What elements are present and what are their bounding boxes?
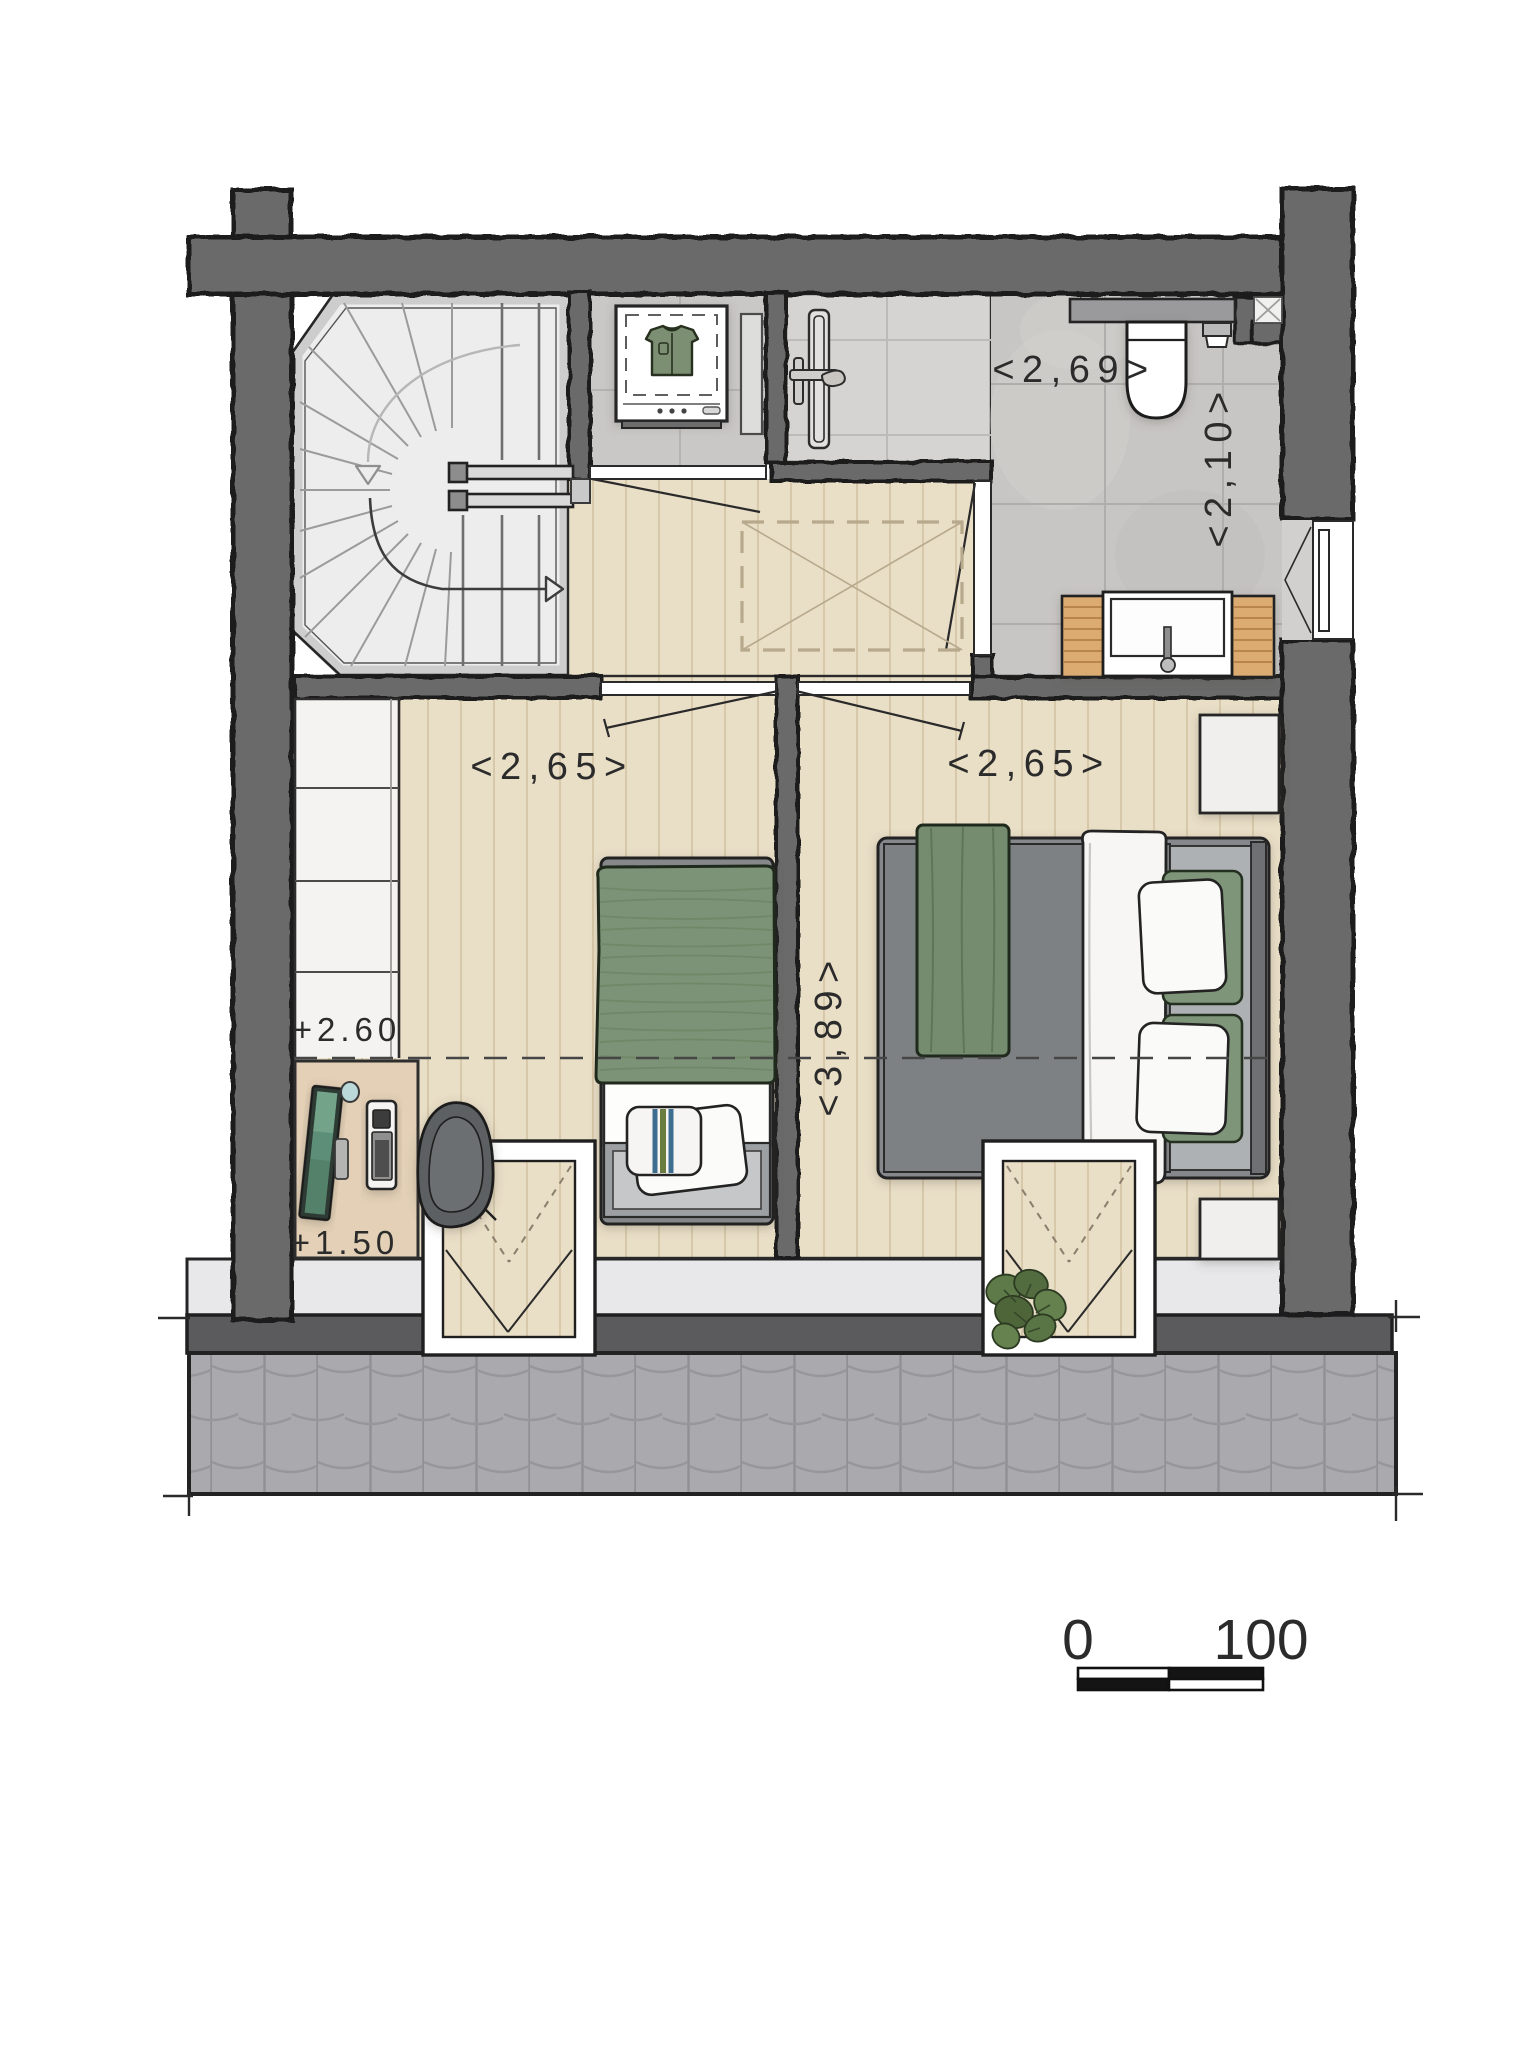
svg-text:<2,69>: <2,69> <box>992 349 1155 391</box>
svg-text:<2,10>: <2,10> <box>1198 384 1240 547</box>
svg-text:+2.60: +2.60 <box>293 1011 402 1048</box>
svg-text:+1.50: +1.50 <box>291 1224 400 1261</box>
svg-text:<2,65>: <2,65> <box>470 746 633 788</box>
svg-text:0: 0 <box>1062 1608 1094 1672</box>
svg-text:<2,65>: <2,65> <box>947 743 1110 785</box>
svg-text:<3,89>: <3,89> <box>808 953 850 1116</box>
svg-text:100: 100 <box>1213 1608 1308 1672</box>
